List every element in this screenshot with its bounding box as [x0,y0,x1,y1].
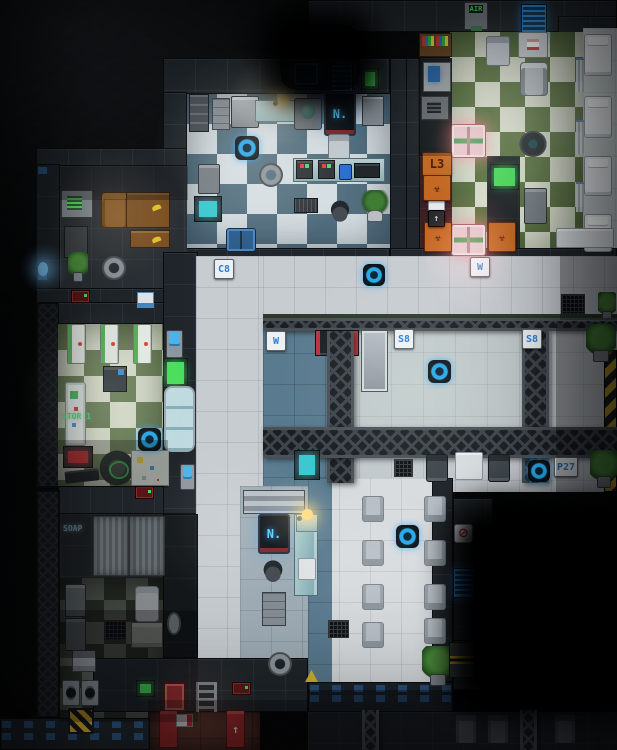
stairs[interactable] [243,490,305,514]
airlock-quarantine-s[interactable] [451,224,486,256]
locker-medical-2[interactable] [100,324,119,364]
bed-ward-3[interactable] [584,156,612,196]
watercooler-2[interactable] [180,464,195,490]
waiting-chair-7[interactable] [424,584,446,610]
sign-L3: L3 [422,152,452,176]
washer-1[interactable] [62,680,80,706]
sign-C8: C8 [214,259,234,279]
arcade-desk[interactable]: N. [258,514,290,554]
hazard-crate[interactable] [68,708,94,734]
tv-table [130,230,170,248]
curtain-1 [576,58,584,92]
washer-2[interactable] [81,680,99,706]
wall-light-blue [38,262,48,276]
locker-red-2-label: ↑ [232,723,239,736]
no-smoking-sign: ⊘ [454,524,473,543]
plant-corridor [598,292,616,320]
vent-unit-blue[interactable] [137,292,154,308]
officechair-desk[interactable] [260,558,286,586]
paper-shredder[interactable] [103,366,127,392]
surgery-console[interactable] [423,62,451,92]
floor-ring-corridor [266,652,294,676]
truss-bottom-2 [520,710,537,750]
washer-toploader[interactable] [72,650,96,672]
wood-desk [126,192,170,228]
waiting-chair-8[interactable] [424,618,446,644]
floor-text-1: STOR 1 [62,412,91,421]
sign-W: W [266,331,286,351]
waiting-chair-2[interactable] [362,540,384,566]
ladder[interactable] [196,682,217,712]
air-dispenser[interactable]: AIR [464,2,488,30]
sign-P27: P27 [554,457,578,477]
arcade-office-label: N. [333,107,347,121]
plant-leftoffice [68,252,88,282]
apc-redroom[interactable] [136,680,155,697]
table-ward-bottom [556,228,614,248]
truss-bottom-1 [362,710,379,750]
sign-label: ↑ [434,214,439,224]
floor-text-0: SOAP [63,524,82,533]
sign-☣: ☣ [423,175,451,201]
extinguisher-cab-2[interactable] [135,486,154,499]
sign-label: L3 [430,157,444,171]
cabinet-tall-office[interactable] [198,164,220,194]
syringe-table [131,450,169,486]
sign-↑: ↑ [428,210,445,227]
plant-hall-south [590,450,617,488]
charge-pad-corridor[interactable] [363,264,385,286]
waiting-chair-1[interactable] [362,496,384,522]
no-smoking-sign-label: ⊘ [458,527,469,540]
vendor-green[interactable] [361,68,379,90]
floor-ring-office [258,162,284,188]
sign-label: W [477,262,483,273]
sign-label: S8 [398,334,410,345]
console-module-a[interactable] [296,160,313,179]
drawer-unit-office[interactable] [212,98,230,130]
floor-grille-waiting[interactable] [328,620,349,638]
sign-W: W [470,257,490,277]
sign-S8: S8 [394,329,414,349]
shower-stall-1[interactable] [93,516,129,576]
sign-label: S8 [526,334,538,345]
locker-bath-2[interactable] [65,618,86,651]
sign-label: W [273,336,279,347]
watercooler-1[interactable] [166,330,183,358]
charge-pad-hall[interactable] [428,360,451,383]
airlock-quarantine-n[interactable] [451,124,486,158]
locker-medical-3[interactable] [133,324,152,364]
shower-stall-2[interactable] [129,516,165,576]
chair-hall-2[interactable] [488,454,510,482]
apc-quarantine[interactable] [490,164,519,190]
charge-pad-stor[interactable] [138,428,161,451]
console-teal-hall[interactable] [294,450,320,480]
waiting-chair-6[interactable] [424,540,446,566]
locker-red-2[interactable]: ↑ [226,710,245,748]
plant-hall-north [586,324,616,362]
laptop-desk[interactable] [354,163,380,178]
sign-S8: S8 [522,329,542,349]
game-viewport: AIRN.N.⊘↑C8WWS8S8P27L3☣☣☣↑SOAPSTOR 1 [0,0,617,750]
chair-hall-1[interactable] [426,454,448,482]
keyboard-pad[interactable] [294,198,318,213]
curtain-2 [576,120,584,154]
bookshelf[interactable] [419,33,452,57]
globe-machine[interactable] [294,98,322,130]
locker-ward[interactable] [524,188,547,224]
sign-label: ☣ [434,230,441,244]
filing-cabinet[interactable] [189,94,209,132]
lamp-table-office [255,100,297,122]
wall-laptop[interactable] [293,62,319,86]
armchair-brown[interactable] [101,192,129,228]
bonsai-office [360,190,390,222]
curtain-3 [576,182,584,212]
wall-vent-corridor[interactable] [561,294,585,314]
bed-ward-1[interactable] [584,34,612,76]
console-module-b[interactable] [318,160,335,179]
region-wall-reinforced-1 [36,302,60,488]
red-scanner[interactable] [63,446,93,468]
bench-chair-1[interactable] [455,714,477,744]
extinguisher-cab-3[interactable] [232,682,251,695]
sign-☣: ☣ [488,222,516,252]
towel-rack [131,622,163,648]
door-hazard-stripe[interactable] [449,642,479,678]
region-wall-bath-east [163,514,198,658]
region-wall-quarantine-west [406,58,420,254]
truss-col-west [327,331,354,483]
white-panel[interactable] [298,558,316,580]
apc-stor[interactable] [163,358,188,388]
sign-label: ☣ [498,230,505,244]
floor-drain [519,131,547,157]
tray-table[interactable] [518,32,548,58]
bench-chair-2[interactable] [487,714,509,744]
bench-chair-3[interactable] [554,714,576,744]
machine-olive[interactable] [194,196,222,222]
floor-grille-hall[interactable] [394,459,413,477]
sign-label: P27 [557,462,575,473]
locker-medical-1[interactable] [67,324,86,364]
table-hall [455,452,483,480]
waiting-chair-5[interactable] [424,496,446,522]
phone-blue[interactable] [339,164,352,180]
arcade-desk-label: N. [267,527,281,541]
drawer-unit-desk[interactable] [262,592,286,626]
region-wall-reinforced-2 [36,490,60,718]
charge-pad-waiting[interactable] [396,525,419,548]
locker-bath-1[interactable] [65,584,86,617]
sign-label: ☣ [433,181,440,195]
region-wall-under-waiting [308,682,453,712]
mirror [167,612,181,635]
glass-doors[interactable] [164,386,195,452]
medkit-box[interactable] [176,714,193,727]
maint-hatch-blue[interactable] [226,228,256,252]
extinguisher-cab-1[interactable] [71,290,90,303]
region-wall-office-top [163,58,390,94]
sign-label: C8 [218,264,230,275]
charge-pad-hall-2[interactable] [528,460,550,482]
toilet[interactable] [135,586,159,622]
chair-ward[interactable] [486,36,510,66]
charge-pad-office[interactable] [235,136,259,160]
arcade-office[interactable]: N. [324,92,356,136]
officechair-office[interactable] [328,198,352,226]
wheelchair[interactable] [520,62,548,96]
red-wall-locker[interactable] [163,682,186,712]
floor-grille-bath[interactable] [104,620,126,640]
bed-ward-2[interactable] [584,96,612,138]
waiting-chair-4[interactable] [362,622,384,648]
wall-cabinet-office[interactable] [362,96,384,126]
lamp-counter [296,514,318,532]
gray-door-tall[interactable] [361,330,388,392]
retro-terminal[interactable] [421,96,449,120]
air-dispenser-label: AIR [469,5,484,13]
keypad-console[interactable] [61,190,93,218]
newscaster-dark[interactable] [453,568,477,598]
waiting-chair-3[interactable] [362,584,384,610]
floor-hatch-round [100,256,128,280]
newscaster-office[interactable] [331,64,353,92]
